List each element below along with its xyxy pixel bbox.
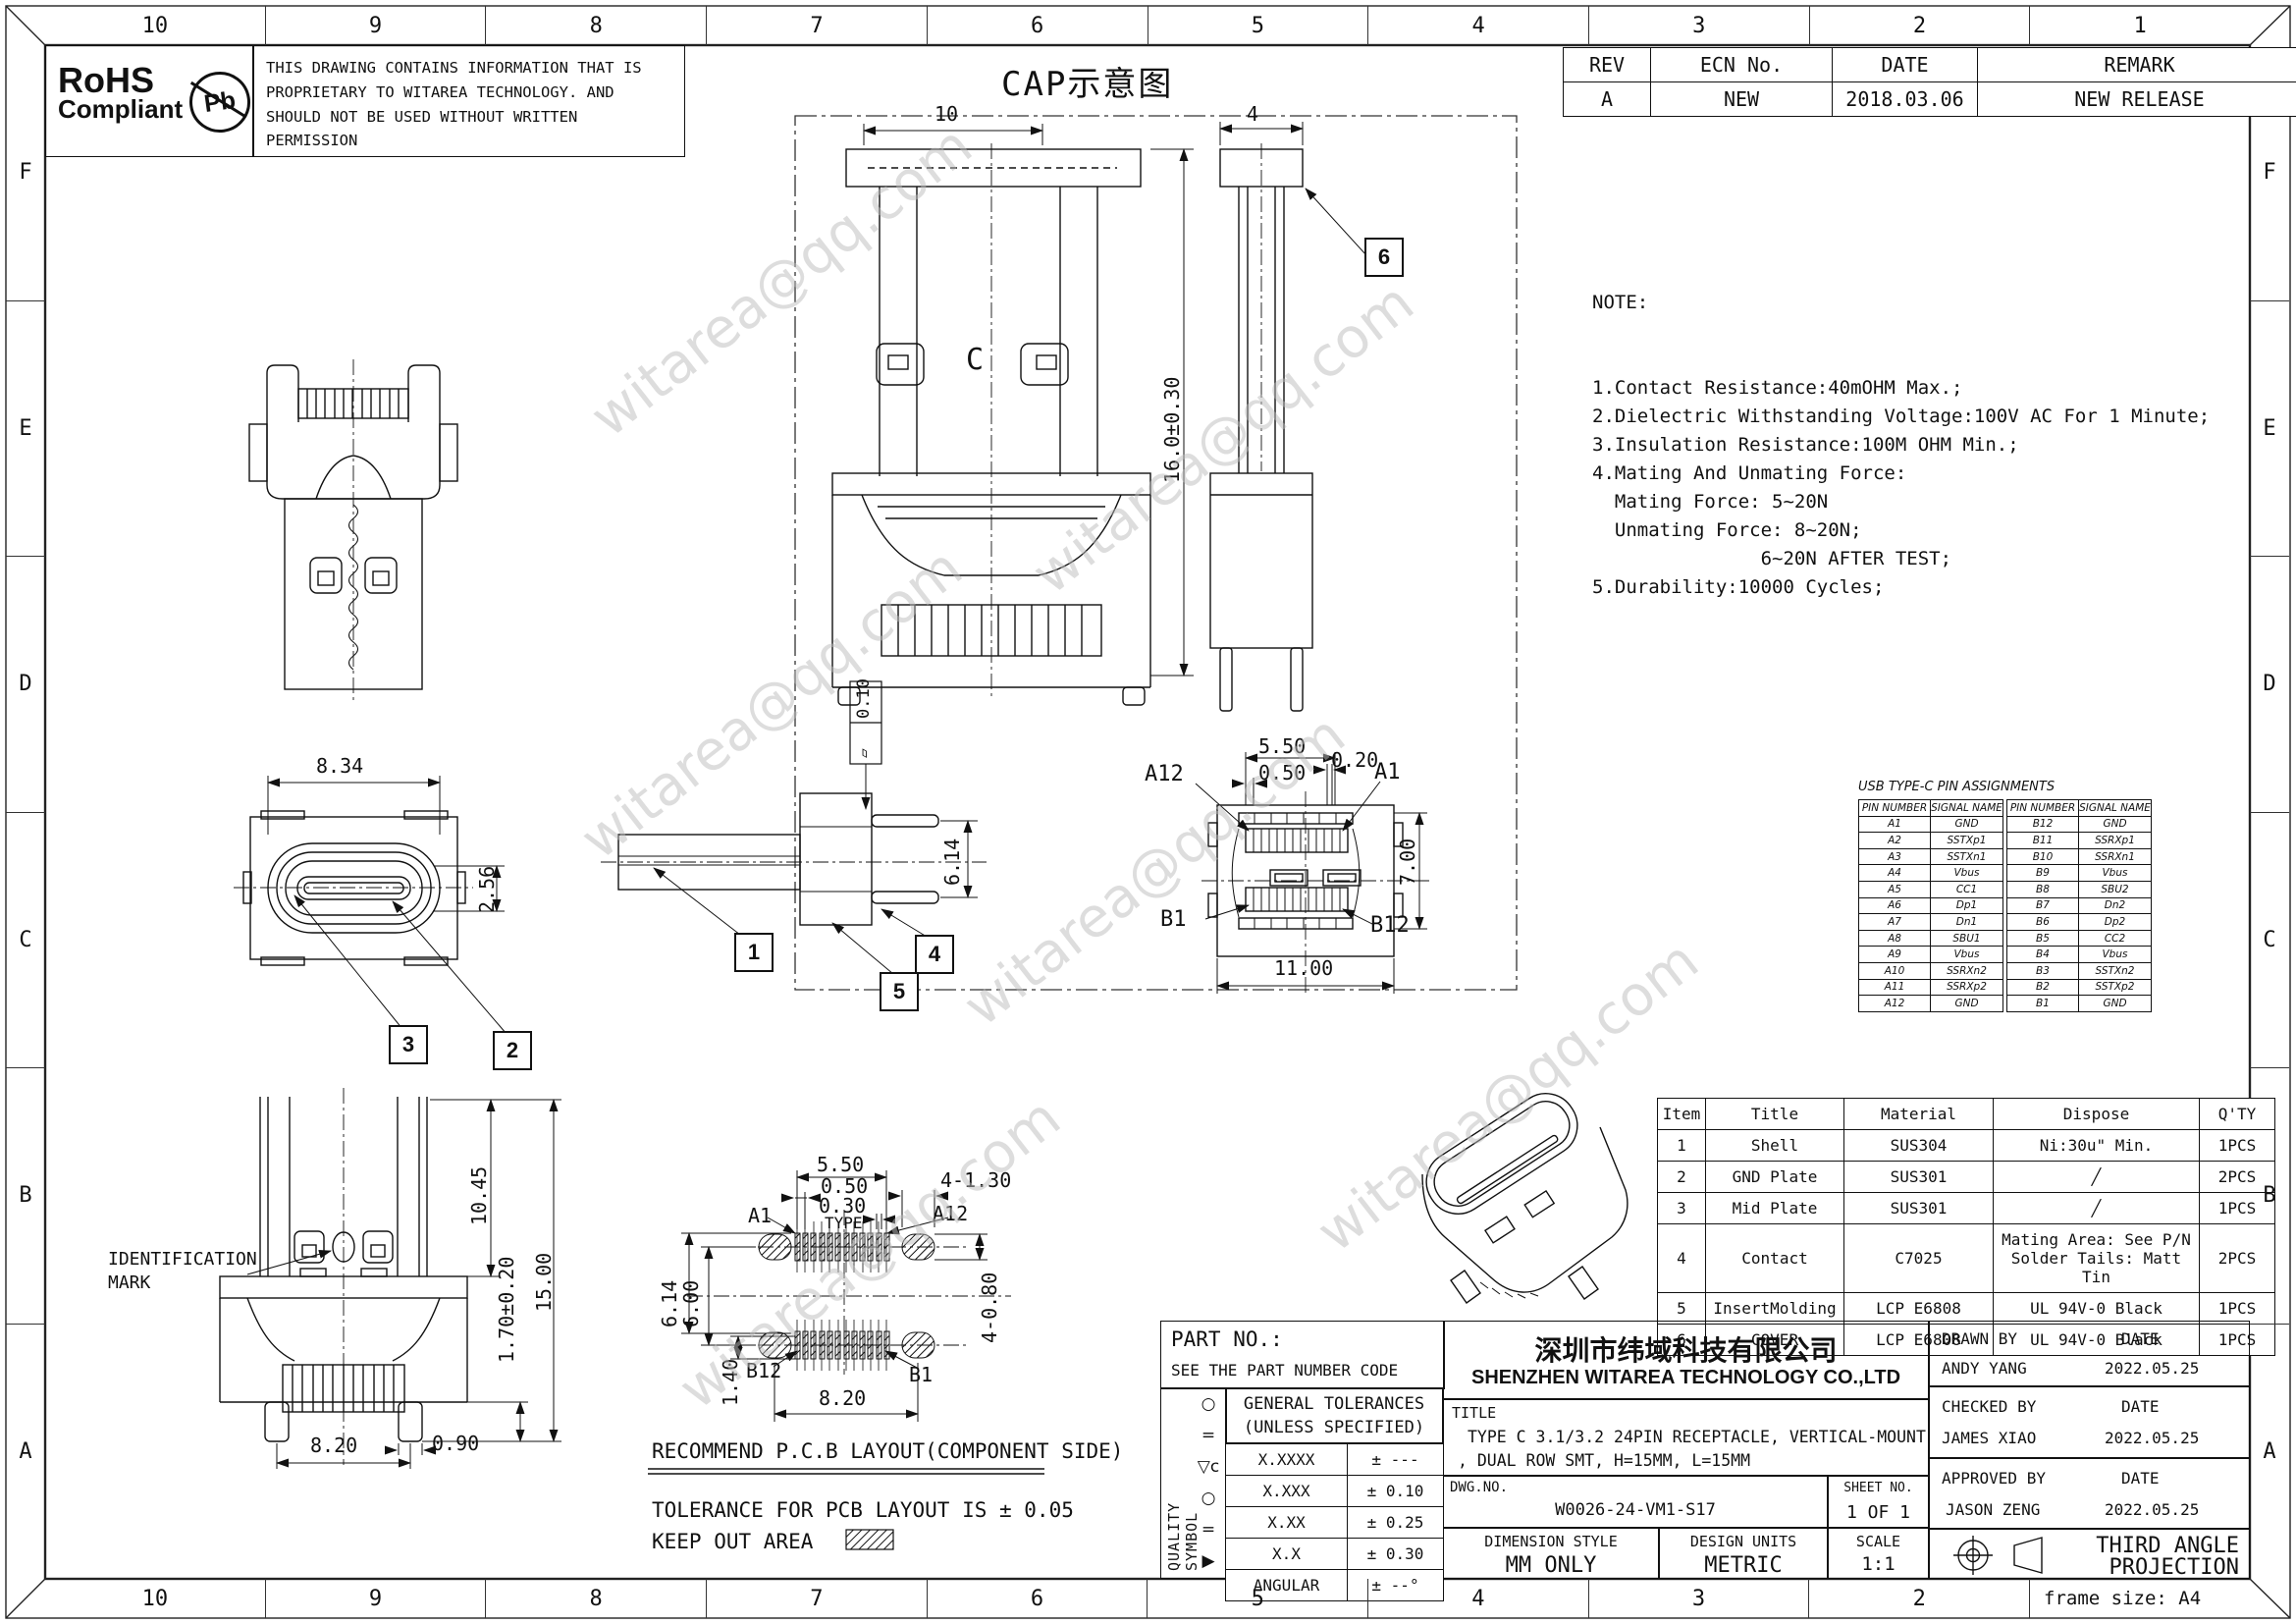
signal-name-header: SIGNAL NAME — [2079, 800, 2152, 817]
pcb-label-b12: B12 — [746, 1361, 781, 1380]
grid-col-label: 10 — [45, 6, 265, 45]
company-name-cn: 深圳市纬域科技有限公司 — [1444, 1329, 1928, 1369]
dim-mv-170: 1.70±0.20 — [497, 1257, 516, 1363]
bom-table: Item Title Material Dispose Q'TY 1ShellS… — [1657, 1098, 2275, 1356]
quality-symbol-box: QUALITY SYMBOL ○=▽c○=▶ — [1160, 1387, 1227, 1579]
dimension-style-label: DIMENSION STYLE — [1444, 1533, 1658, 1550]
table-cell: Dn1 — [1931, 914, 2003, 931]
table-cell: GND Plate — [1706, 1162, 1844, 1193]
table-cell: Vbus — [1931, 865, 2003, 882]
scale-box: SCALE 1:1 — [1828, 1528, 1929, 1579]
grid-col-label: 2 — [1808, 1579, 2029, 1618]
general-tolerances-line2: (UNLESS SPECIFIED) — [1226, 1418, 1442, 1437]
dim-topview-width: 8.34 — [316, 756, 363, 776]
grid-col-label: 8 — [485, 6, 706, 45]
table-cell: Mid Plate — [1706, 1193, 1844, 1224]
title-label: TITLE — [1452, 1404, 1496, 1422]
drawn-date: 2022.05.25 — [2105, 1359, 2199, 1378]
table-cell: X.XXX — [1226, 1476, 1348, 1507]
table-cell: B5 — [2007, 930, 2079, 947]
quality-symbol-icon: ○ — [1201, 1489, 1216, 1508]
projection-line2: PROJECTION — [2109, 1555, 2239, 1580]
notes-block: NOTE: 1.Contact Resistance:40mOHM Max.;2… — [1592, 232, 2250, 659]
grid-band-top: 10987654321 — [45, 6, 2250, 45]
table-row: A5CC1 — [1859, 881, 2003, 897]
note-line: 6~20N AFTER TEST; — [1592, 545, 2250, 573]
table-cell: B3 — [2007, 962, 2079, 979]
proprietary-text: THIS DRAWING CONTAINS INFORMATION THAT I… — [266, 56, 672, 153]
table-cell: B8 — [2007, 881, 2079, 897]
grid-col-label: 9 — [265, 6, 486, 45]
checked-by-name: JAMES XIAO — [1942, 1429, 2036, 1447]
pcb-recommend-label: RECOMMEND P.C.B LAYOUT(COMPONENT SIDE) — [652, 1441, 1123, 1462]
table-cell: B1 — [2007, 996, 2079, 1012]
revision-table: REV ECN No. DATE REMARK ANEW2018.03.06NE… — [1563, 47, 2296, 117]
table-cell: 5 — [1658, 1293, 1706, 1325]
table-row: B10SSRXn1 — [2007, 848, 2152, 865]
table-cell: SSRXp2 — [1931, 979, 2003, 996]
sheet-no-label: SHEET NO. — [1829, 1481, 1928, 1495]
dwg-no-label: DWG.NO. — [1450, 1480, 1508, 1495]
table-cell: X.XXXX — [1226, 1444, 1348, 1476]
part-no-label: PART NO.: — [1171, 1327, 1283, 1351]
table-cell: A — [1564, 82, 1651, 117]
table-cell: B9 — [2007, 865, 2079, 882]
table-cell: NEW — [1651, 82, 1833, 117]
table-cell: A4 — [1859, 865, 1931, 882]
table-cell: LCP E6808 — [1844, 1293, 1994, 1325]
grid-col-label: 1 — [2029, 6, 2250, 45]
pin-table-a: PIN NUMBER SIGNAL NAME A1GNDA2SSTXp1A3SS… — [1858, 799, 2003, 1012]
table-row: B1GND — [2007, 996, 2152, 1012]
pin-table-title: USB TYPE-C PIN ASSIGNMENTS — [1858, 780, 2055, 794]
title-box: TITLE TYPE C 3.1/3.2 24PIN RECEPTACLE, V… — [1443, 1399, 1929, 1476]
grid-band-left: FEDCBA — [6, 45, 45, 1579]
table-row: PIN NUMBER SIGNAL NAME — [1859, 800, 2003, 817]
table-row: A3SSTXn1 — [1859, 848, 2003, 865]
table-cell: 4 — [1658, 1224, 1706, 1293]
general-tolerances-box: GENERAL TOLERANCES (UNLESS SPECIFIED) — [1225, 1387, 1443, 1443]
dim-pf-1100: 11.00 — [1274, 958, 1333, 978]
table-row: A6Dp1 — [1859, 897, 2003, 914]
company-box: 深圳市纬域科技有限公司 SHENZHEN WITAREA TECHNOLOGY … — [1443, 1321, 1929, 1399]
table-cell: A2 — [1859, 833, 1931, 849]
company-name-en: SHENZHEN WITAREA TECHNOLOGY CO.,LTD — [1444, 1367, 1928, 1389]
table-cell: B11 — [2007, 833, 2079, 849]
dim-cap-width: 10 — [934, 104, 958, 124]
table-cell: SSTXp2 — [2079, 979, 2152, 996]
table-cell: ╱ — [1994, 1162, 2200, 1193]
table-cell: A9 — [1859, 947, 1931, 963]
table-cell: Dp1 — [1931, 897, 2003, 914]
dim-cap-side-width: 4 — [1247, 104, 1258, 124]
general-tolerances-line1: GENERAL TOLERANCES — [1226, 1394, 1442, 1414]
grid-col-label: 5 — [1148, 6, 1368, 45]
notes-title: NOTE: — [1592, 289, 2250, 317]
table-cell: A7 — [1859, 914, 1931, 931]
table-row: A7Dn1 — [1859, 914, 2003, 931]
cap-side-view — [1210, 143, 1312, 711]
drawn-by-name: ANDY YANG — [1942, 1359, 2027, 1378]
checked-date: 2022.05.25 — [2105, 1429, 2199, 1447]
table-cell: Dp2 — [2079, 914, 2152, 931]
rohs-compliant-label: Compliant — [58, 97, 183, 122]
cap-id-letter: C — [966, 346, 984, 375]
table-cell: GND — [1931, 816, 2003, 833]
dim-pcb-820: 8.20 — [819, 1388, 866, 1408]
grid-row-label: F — [2250, 45, 2289, 300]
table-row: X.XXX± 0.10 — [1226, 1476, 1444, 1507]
dim-mv-090: 0.90 — [432, 1434, 479, 1453]
table-cell: Contact — [1706, 1224, 1844, 1293]
table-cell: Mating Area: See P/N Solder Tails: Matt … — [1994, 1224, 2200, 1293]
approved-by-name: JASON ZENG — [1946, 1500, 2040, 1519]
dim-pf-020: 0.20 — [1331, 750, 1378, 770]
date-label: DATE — [2121, 1469, 2160, 1488]
table-cell: InsertMolding — [1706, 1293, 1844, 1325]
grid-col-label: 3 — [1588, 1579, 1809, 1618]
table-cell: Shell — [1706, 1130, 1844, 1162]
grid-row-label: A — [2250, 1324, 2289, 1580]
table-cell: SSRXp1 — [2079, 833, 2152, 849]
side-view — [601, 681, 987, 925]
grid-col-label: 3 — [1588, 6, 1809, 45]
approved-by-label: APPROVED BY — [1942, 1469, 2046, 1488]
table-cell: ± --- — [1348, 1444, 1444, 1476]
grid-col-label: 7 — [706, 1579, 927, 1618]
grid-row-label: D — [6, 556, 45, 812]
top-view — [234, 811, 473, 965]
part-no-value: SEE THE PART NUMBER CODE — [1171, 1361, 1398, 1380]
table-row: 4ContactC7025Mating Area: See P/N Solder… — [1658, 1224, 2275, 1293]
table-cell: GND — [2079, 816, 2152, 833]
dim-pcb-050: 0.50 — [821, 1176, 868, 1196]
table-cell: SSTXn1 — [1931, 848, 2003, 865]
drawing-title-line1: TYPE C 3.1/3.2 24PIN RECEPTACLE, VERTICA… — [1468, 1428, 1926, 1446]
table-cell: NEW RELEASE — [1978, 82, 2296, 117]
balloon-6: 6 — [1364, 238, 1404, 277]
table-row: B3SSTXn2 — [2007, 962, 2152, 979]
pcb-tolerance-label: TOLERANCE FOR PCB LAYOUT IS ± 0.05 — [652, 1500, 1074, 1521]
table-cell: SSTXp1 — [1931, 833, 2003, 849]
rohs-label: RoHS — [58, 64, 183, 97]
table-cell: 2 — [1658, 1162, 1706, 1193]
cap-front-view — [832, 143, 1150, 705]
table-cell: ± 0.25 — [1348, 1507, 1444, 1539]
grid-row-label: B — [2250, 1067, 2289, 1324]
approved-date: 2022.05.25 — [2105, 1500, 2199, 1519]
table-row: B12GND — [2007, 816, 2152, 833]
pcb-label-a1: A1 — [748, 1206, 772, 1225]
dim-topview-height: 2.56 — [477, 866, 497, 913]
pcb-label-a12: A12 — [933, 1204, 968, 1223]
remark-header: REMARK — [1978, 48, 2296, 82]
date-label: DATE — [2121, 1329, 2160, 1348]
dim-mv-1045: 10.45 — [469, 1166, 489, 1225]
table-cell: SSRXn1 — [2079, 848, 2152, 865]
quality-symbol-icon: ▶ — [1201, 1551, 1214, 1571]
dim-sideview-height: 6.14 — [942, 839, 962, 886]
pin-label-a12: A12 — [1145, 764, 1184, 785]
item-header: Item — [1658, 1099, 1706, 1130]
quality-symbol-icon: = — [1201, 1426, 1215, 1445]
table-cell: GND — [2079, 996, 2152, 1012]
pin-label-a1: A1 — [1374, 762, 1401, 784]
grid-col-label: 7 — [706, 6, 927, 45]
table-row: X.X± 0.30 — [1226, 1539, 1444, 1570]
dimension-style-box: DIMENSION STYLE MM ONLY — [1443, 1528, 1659, 1579]
table-row: A12GND — [1859, 996, 2003, 1012]
balloon-4: 4 — [915, 935, 954, 974]
note-line: Unmating Force: 8~20N; — [1592, 516, 2250, 545]
grid-col-label: 2 — [1809, 6, 2030, 45]
grid-col-label: 5 — [1147, 1579, 1367, 1618]
drawn-by-box: DRAWN BY DATE ANDY YANG 2022.05.25 — [1929, 1321, 2250, 1386]
table-cell: Dn2 — [2079, 897, 2152, 914]
dim-pf-700: 7.00 — [1398, 839, 1417, 886]
dwg-no-box: DWG.NO. W0026-24-VM1-S17 — [1443, 1476, 1828, 1528]
grid-col-label: 10 — [45, 1579, 265, 1618]
pcb-label-b1: B1 — [909, 1365, 933, 1384]
table-cell: 1 — [1658, 1130, 1706, 1162]
table-row: A8SBU1 — [1859, 930, 2003, 947]
table-row: B4Vbus — [2007, 947, 2152, 963]
table-cell: ± 0.10 — [1348, 1476, 1444, 1507]
rohs-box: RoHS Compliant Pb — [45, 45, 253, 157]
table-cell: B10 — [2007, 848, 2079, 865]
table-cell: A6 — [1859, 897, 1931, 914]
table-cell: A11 — [1859, 979, 1931, 996]
quality-symbol-icon: ○ — [1201, 1394, 1216, 1414]
proprietary-box: THIS DRAWING CONTAINS INFORMATION THAT I… — [253, 45, 685, 157]
ecn-header: ECN No. — [1651, 48, 1833, 82]
grid-row-label: A — [6, 1324, 45, 1580]
approved-by-box: APPROVED BY DATE JASON ZENG 2022.05.25 — [1929, 1458, 2250, 1529]
cap-front-dims — [864, 124, 1194, 676]
date-header: DATE — [1833, 48, 1978, 82]
grid-col-label: 6 — [927, 6, 1148, 45]
table-cell: SBU2 — [2079, 881, 2152, 897]
checked-by-label: CHECKED BY — [1942, 1397, 2036, 1416]
dimension-style-value: MM ONLY — [1444, 1553, 1658, 1578]
balloon-3: 3 — [389, 1025, 428, 1064]
dim-pcb-030: 0.30 — [819, 1196, 866, 1216]
table-cell: A8 — [1859, 930, 1931, 947]
projection-box: THIRD ANGLE PROJECTION — [1929, 1529, 2250, 1579]
signal-name-header: SIGNAL NAME — [1931, 800, 2003, 817]
table-cell: A1 — [1859, 816, 1931, 833]
pin-label-b1: B1 — [1160, 909, 1187, 931]
table-cell: Vbus — [2079, 947, 2152, 963]
table-cell: UL 94V-0 Black — [1994, 1293, 2200, 1325]
sheet-no-value: 1 OF 1 — [1829, 1502, 1928, 1523]
table-row: A4Vbus — [1859, 865, 2003, 882]
scale-label: SCALE — [1829, 1533, 1928, 1550]
table-cell: Vbus — [2079, 865, 2152, 882]
table-row: REV ECN No. DATE REMARK — [1564, 48, 2296, 82]
table-cell: B6 — [2007, 914, 2079, 931]
table-cell: A5 — [1859, 881, 1931, 897]
table-row: B6Dp2 — [2007, 914, 2152, 931]
table-cell: 3 — [1658, 1193, 1706, 1224]
balloon-2: 2 — [493, 1031, 532, 1070]
table-cell: C7025 — [1844, 1224, 1994, 1293]
grid-row-label: B — [6, 1067, 45, 1324]
table-cell: Ni:30u" Min. — [1994, 1130, 2200, 1162]
identification-mark-line2: MARK — [108, 1274, 150, 1292]
design-units-value: METRIC — [1660, 1553, 1827, 1578]
table-cell: 2018.03.06 — [1833, 82, 1978, 117]
table-row: A2SSTXp1 — [1859, 833, 2003, 849]
dim-pcb-550: 5.50 — [817, 1155, 864, 1174]
sheet-no-box: SHEET NO. 1 OF 1 — [1828, 1476, 1929, 1528]
table-row: B9Vbus — [2007, 865, 2152, 882]
table-row: A10SSRXn2 — [1859, 962, 2003, 979]
dim-mv-820: 8.20 — [310, 1435, 357, 1455]
pcb-type-label: TYPE — [825, 1216, 863, 1231]
quality-symbol-icon: ▽c — [1198, 1457, 1219, 1477]
table-row: 1ShellSUS304Ni:30u" Min.1PCS — [1658, 1130, 2275, 1162]
cap-section-title: CAP示意图 — [1001, 57, 1173, 105]
grid-col-label: 8 — [485, 1579, 706, 1618]
table-row: B2SSTXp2 — [2007, 979, 2152, 996]
cap-side-dims — [1220, 122, 1366, 255]
table-cell: A3 — [1859, 848, 1931, 865]
table-cell: B12 — [2007, 816, 2079, 833]
grid-row-label: E — [6, 300, 45, 557]
note-line: 1.Contact Resistance:40mOHM Max.; — [1592, 374, 2250, 403]
balloon-5: 5 — [880, 972, 919, 1011]
grid-col-label: 6 — [927, 1579, 1148, 1618]
table-cell: SUS301 — [1844, 1162, 1994, 1193]
front-view — [249, 359, 457, 703]
table-cell: ╱ — [1994, 1193, 2200, 1224]
table-cell: CC2 — [2079, 930, 2152, 947]
table-row: PIN NUMBER SIGNAL NAME — [2007, 800, 2152, 817]
pcb-keepout-label: KEEP OUT AREA — [652, 1532, 813, 1552]
table-row: B8SBU2 — [2007, 881, 2152, 897]
table-cell: B4 — [2007, 947, 2079, 963]
grid-col-label: 9 — [265, 1579, 486, 1618]
dim-pcb-140: 1.40 — [721, 1359, 740, 1406]
table-cell: B2 — [2007, 979, 2079, 996]
flatness-symbol-icon: ▱ — [856, 748, 872, 758]
table-row: ANEW2018.03.06NEW RELEASE — [1564, 82, 2296, 117]
pin-table-b: PIN NUMBER SIGNAL NAME B12GNDB11SSRXp1B1… — [2006, 799, 2152, 1012]
pin-number-header: PIN NUMBER — [2007, 800, 2079, 817]
flatness-value: 0.10 — [856, 678, 873, 719]
drawn-by-label: DRAWN BY — [1942, 1329, 2017, 1348]
dim-pcb-4080: 4-0.80 — [980, 1272, 999, 1343]
table-cell: CC1 — [1931, 881, 2003, 897]
table-cell: A10 — [1859, 962, 1931, 979]
note-line: 4.Mating And Unmating Force: — [1592, 460, 2250, 488]
isometric-view — [1415, 1082, 1628, 1303]
grid-band-bottom: 1098765432 — [45, 1579, 2029, 1618]
grid-row-label: E — [2250, 300, 2289, 557]
grid-row-label: C — [6, 812, 45, 1068]
pin-label-b12: B12 — [1370, 915, 1410, 937]
table-row: 2GND PlateSUS301╱2PCS — [1658, 1162, 2275, 1193]
table-row: 5InsertMoldingLCP E6808UL 94V-0 Black1PC… — [1658, 1293, 2275, 1325]
title-header: Title — [1706, 1099, 1844, 1130]
table-row: 3Mid PlateSUS301╱1PCS — [1658, 1193, 2275, 1224]
table-row: B11SSRXp1 — [2007, 833, 2152, 849]
frame-size-label: frame size: A4 — [2029, 1579, 2265, 1618]
table-row: A9Vbus — [1859, 947, 2003, 963]
table-row: B7Dn2 — [2007, 897, 2152, 914]
drawing-sheet: 10987654321 1098765432 frame size: A4 FE… — [0, 0, 2296, 1624]
quality-symbols: ○=▽c○=▶ — [1195, 1394, 1222, 1571]
design-units-box: DESIGN UNITS METRIC — [1659, 1528, 1828, 1579]
table-cell: SUS304 — [1844, 1130, 1994, 1162]
dim-cap-height: 16.0±0.30 — [1162, 377, 1182, 483]
table-cell: SBU1 — [1931, 930, 2003, 947]
note-line: 3.Insulation Resistance:100M OHM Min.; — [1592, 431, 2250, 460]
third-angle-projection-icon — [1946, 1530, 2054, 1580]
grid-band-right: FEDCBA — [2250, 45, 2289, 1579]
table-cell: X.XX — [1226, 1507, 1348, 1539]
table-row: A1GND — [1859, 816, 2003, 833]
drawing-title-line2: , DUAL ROW SMT, H=15MM, L=15MM — [1458, 1451, 1750, 1470]
grid-row-label: C — [2250, 812, 2289, 1068]
material-header: Material — [1844, 1099, 1994, 1130]
table-row: B5CC2 — [2007, 930, 2152, 947]
table-cell: B7 — [2007, 897, 2079, 914]
table-cell: SUS301 — [1844, 1193, 1994, 1224]
date-label: DATE — [2121, 1397, 2160, 1416]
dim-pf-050: 0.50 — [1258, 763, 1306, 783]
table-cell: A12 — [1859, 996, 1931, 1012]
table-row: A11SSRXp2 — [1859, 979, 2003, 996]
mount-front-view — [220, 1088, 467, 1465]
table-row: Item Title Material Dispose Q'TY — [1658, 1099, 2275, 1130]
tolerance-table: X.XXXX± ---X.XXX± 0.10X.XX± 0.25X.X± 0.3… — [1225, 1443, 1444, 1601]
scale-value: 1:1 — [1829, 1553, 1928, 1575]
note-line: 5.Durability:10000 Cycles; — [1592, 573, 2250, 602]
table-cell: GND — [1931, 996, 2003, 1012]
pb-free-icon: Pb — [186, 68, 254, 136]
table-row: X.XXXX± --- — [1226, 1444, 1444, 1476]
table-cell: SSRXn2 — [1931, 962, 2003, 979]
dim-pcb-4130: 4-1.30 — [940, 1170, 1011, 1190]
table-cell: X.X — [1226, 1539, 1348, 1570]
checked-by-box: CHECKED BY DATE JAMES XIAO 2022.05.25 — [1929, 1386, 2250, 1458]
grid-row-label: F — [6, 45, 45, 300]
grid-row-label: D — [2250, 556, 2289, 812]
note-line: Mating Force: 5~20N — [1592, 488, 2250, 516]
grid-col-label: 4 — [1367, 1579, 1588, 1618]
design-units-label: DESIGN UNITS — [1660, 1533, 1827, 1550]
balloon-1: 1 — [734, 933, 774, 972]
identification-mark-line1: IDENTIFICATION — [108, 1251, 257, 1269]
table-cell: Vbus — [1931, 947, 2003, 963]
table-row: X.XX± 0.25 — [1226, 1507, 1444, 1539]
dim-pcb-600: 6.00 — [681, 1280, 701, 1327]
part-no-box: PART NO.: SEE THE PART NUMBER CODE — [1160, 1321, 1445, 1389]
table-cell: ± 0.30 — [1348, 1539, 1444, 1570]
dim-mv-1500: 15.00 — [534, 1253, 554, 1312]
grid-col-label: 4 — [1367, 6, 1588, 45]
rev-header: REV — [1564, 48, 1651, 82]
pin-number-header: PIN NUMBER — [1859, 800, 1931, 817]
dwg-no-value: W0026-24-VM1-S17 — [1444, 1500, 1827, 1520]
table-cell: SSTXn2 — [2079, 962, 2152, 979]
note-line: 2.Dielectric Withstanding Voltage:100V A… — [1592, 403, 2250, 431]
dim-pf-550: 5.50 — [1258, 736, 1306, 756]
dispose-header: Dispose — [1994, 1099, 2200, 1130]
dim-pcb-614: 6.14 — [660, 1280, 679, 1327]
